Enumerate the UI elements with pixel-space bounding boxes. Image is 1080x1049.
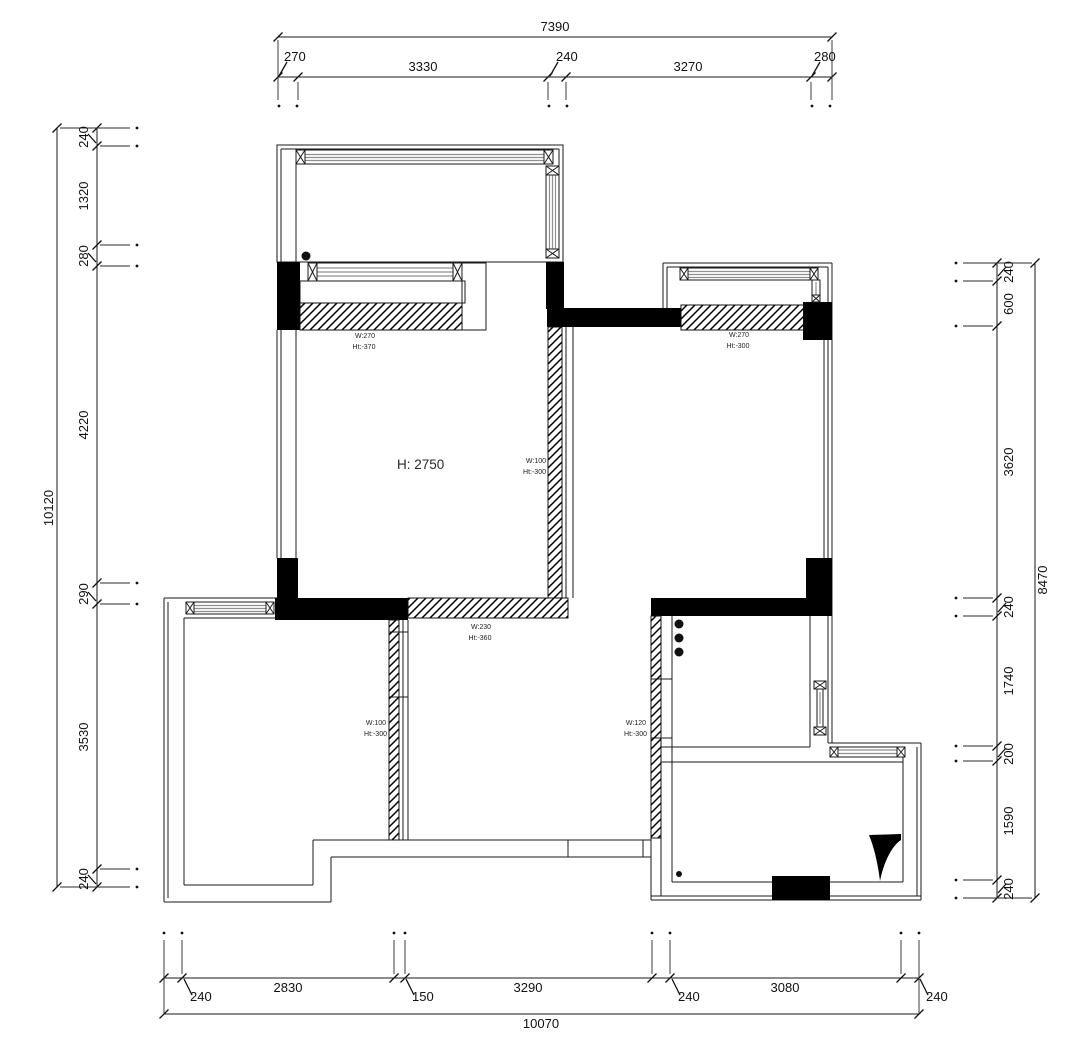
wall-note-w: W:270: [355, 333, 375, 340]
window-wing-top[interactable]: [830, 747, 905, 757]
wall-note-h: Ht:-360: [469, 635, 492, 642]
dim-left-seg-4: 290: [76, 583, 91, 605]
column[interactable]: [803, 302, 832, 340]
plan-walls[interactable]: [164, 145, 921, 902]
wall-note-mid-horizontal: W:230 Ht:-360: [469, 624, 492, 642]
wall-note-kitchen-vertical: W:120 Ht:-300: [624, 720, 647, 738]
solid-wall[interactable]: [651, 598, 828, 616]
dim-top-seg-0: 270: [284, 49, 306, 64]
dim-bottom-overall: 10070: [523, 1016, 559, 1031]
dim-left-seg-2: 280: [76, 245, 91, 267]
wall-note-w: W:100: [366, 720, 386, 727]
dim-bottom-seg-1: 2830: [274, 980, 303, 995]
wall-note-h: Ht:-300: [727, 343, 750, 350]
dim-top-seg-1: 3330: [409, 59, 438, 74]
wall-note-top-right: W:270 Ht:-300: [727, 332, 750, 350]
dim-chain-bottom: 10070 240 2830 150 3290 240 3080 240: [160, 932, 948, 1031]
window-top-right[interactable]: [680, 268, 820, 302]
window-kitchen-right[interactable]: [814, 681, 826, 735]
hatched-wall-top-right[interactable]: [681, 305, 804, 330]
dim-right-seg-6: 1590: [1001, 807, 1016, 836]
window-balcony-right[interactable]: [546, 166, 559, 258]
dim-bottom-seg-2: 150: [412, 989, 434, 1004]
wall-note-w: W:230: [471, 624, 491, 631]
dim-right-seg-4: 1740: [1001, 667, 1016, 696]
dim-top-seg-3: 3270: [674, 59, 703, 74]
dim-right-seg-7: 240: [1001, 878, 1016, 900]
wall-note-w: W:100: [526, 458, 546, 465]
dim-bottom-seg-4: 240: [678, 989, 700, 1004]
floor-plan-page: H: 2750 W:270 Ht:-370 W:270 Ht:-300 W:10…: [0, 0, 1080, 1049]
dim-right-seg-2: 3620: [1001, 448, 1016, 477]
dim-left-seg-1: 1320: [76, 182, 91, 211]
wall-note-w: W:270: [729, 332, 749, 339]
dim-bottom-seg-3: 3290: [514, 980, 543, 995]
dim-left-seg-5: 3530: [76, 723, 91, 752]
kitchen-dot: [675, 620, 684, 629]
dim-chain-right: 8470 240 600 3620 240 1740 200 1590 240: [955, 259, 1050, 903]
wall-note-h: Ht:-300: [624, 731, 647, 738]
column[interactable]: [277, 558, 298, 620]
kitchen-dot: [675, 634, 684, 643]
room-height-label: H: 2750: [397, 457, 444, 472]
dim-top-seg-4: 280: [814, 49, 836, 64]
dim-bottom-seg-6: 240: [926, 989, 948, 1004]
hatched-wall-bay[interactable]: [300, 303, 462, 330]
wall-note-w: W:120: [626, 720, 646, 727]
dim-left-seg-0: 240: [76, 126, 91, 148]
solid-wall[interactable]: [547, 308, 681, 327]
plan-windows[interactable]: [186, 150, 905, 757]
dim-top-seg-2: 240: [556, 49, 578, 64]
dim-top-overall: 7390: [541, 19, 570, 34]
dim-bottom-seg-5: 3080: [771, 980, 800, 995]
dim-left-seg-3: 4220: [76, 411, 91, 440]
wall-note-mid-vertical: W:100 Ht:-300: [523, 458, 546, 476]
hatched-wall-left-vertical[interactable]: [389, 620, 399, 840]
room-dot: [676, 871, 682, 877]
window-balcony-top[interactable]: [296, 150, 553, 164]
window-bottom-left[interactable]: [186, 602, 274, 614]
hatched-wall-mid-vertical[interactable]: [548, 327, 562, 598]
dim-right-seg-5: 200: [1001, 743, 1016, 765]
wall-note-h: Ht:-370: [353, 344, 376, 351]
dim-chain-left: 10120 240 1320 280 4220 290 3530 240: [41, 124, 138, 892]
hatched-wall-kitchen-vertical[interactable]: [651, 616, 661, 838]
column[interactable]: [277, 262, 300, 330]
window-bay[interactable]: [308, 263, 462, 281]
kitchen-dot: [675, 648, 684, 657]
entry-flag-symbol: [869, 834, 901, 881]
hatched-wall-mid-horizontal[interactable]: [408, 598, 568, 618]
dim-right-seg-0: 240: [1001, 261, 1016, 283]
dim-left-seg-6: 240: [76, 868, 91, 890]
plan-hatched-walls[interactable]: [300, 303, 804, 840]
floor-plan-canvas[interactable]: H: 2750 W:270 Ht:-370 W:270 Ht:-300 W:10…: [0, 0, 1080, 1049]
wall-note-bay-top-left: W:270 Ht:-370: [353, 333, 376, 351]
wall-note-h: Ht:-300: [523, 469, 546, 476]
column[interactable]: [546, 262, 564, 309]
dim-right-seg-1: 600: [1001, 293, 1016, 315]
dim-right-overall: 8470: [1035, 566, 1050, 595]
dim-right-seg-3: 240: [1001, 596, 1016, 618]
dim-left-overall: 10120: [41, 490, 56, 526]
wall-note-h: Ht:-300: [364, 731, 387, 738]
balcony-dot: [302, 252, 311, 261]
dim-chain-top: 7390 270 3330 240 3270 280: [274, 19, 837, 107]
wall-note-left-vertical: W:100 Ht:-300: [364, 720, 387, 738]
door-threshold[interactable]: [772, 876, 830, 900]
dim-bottom-seg-0: 240: [190, 989, 212, 1004]
